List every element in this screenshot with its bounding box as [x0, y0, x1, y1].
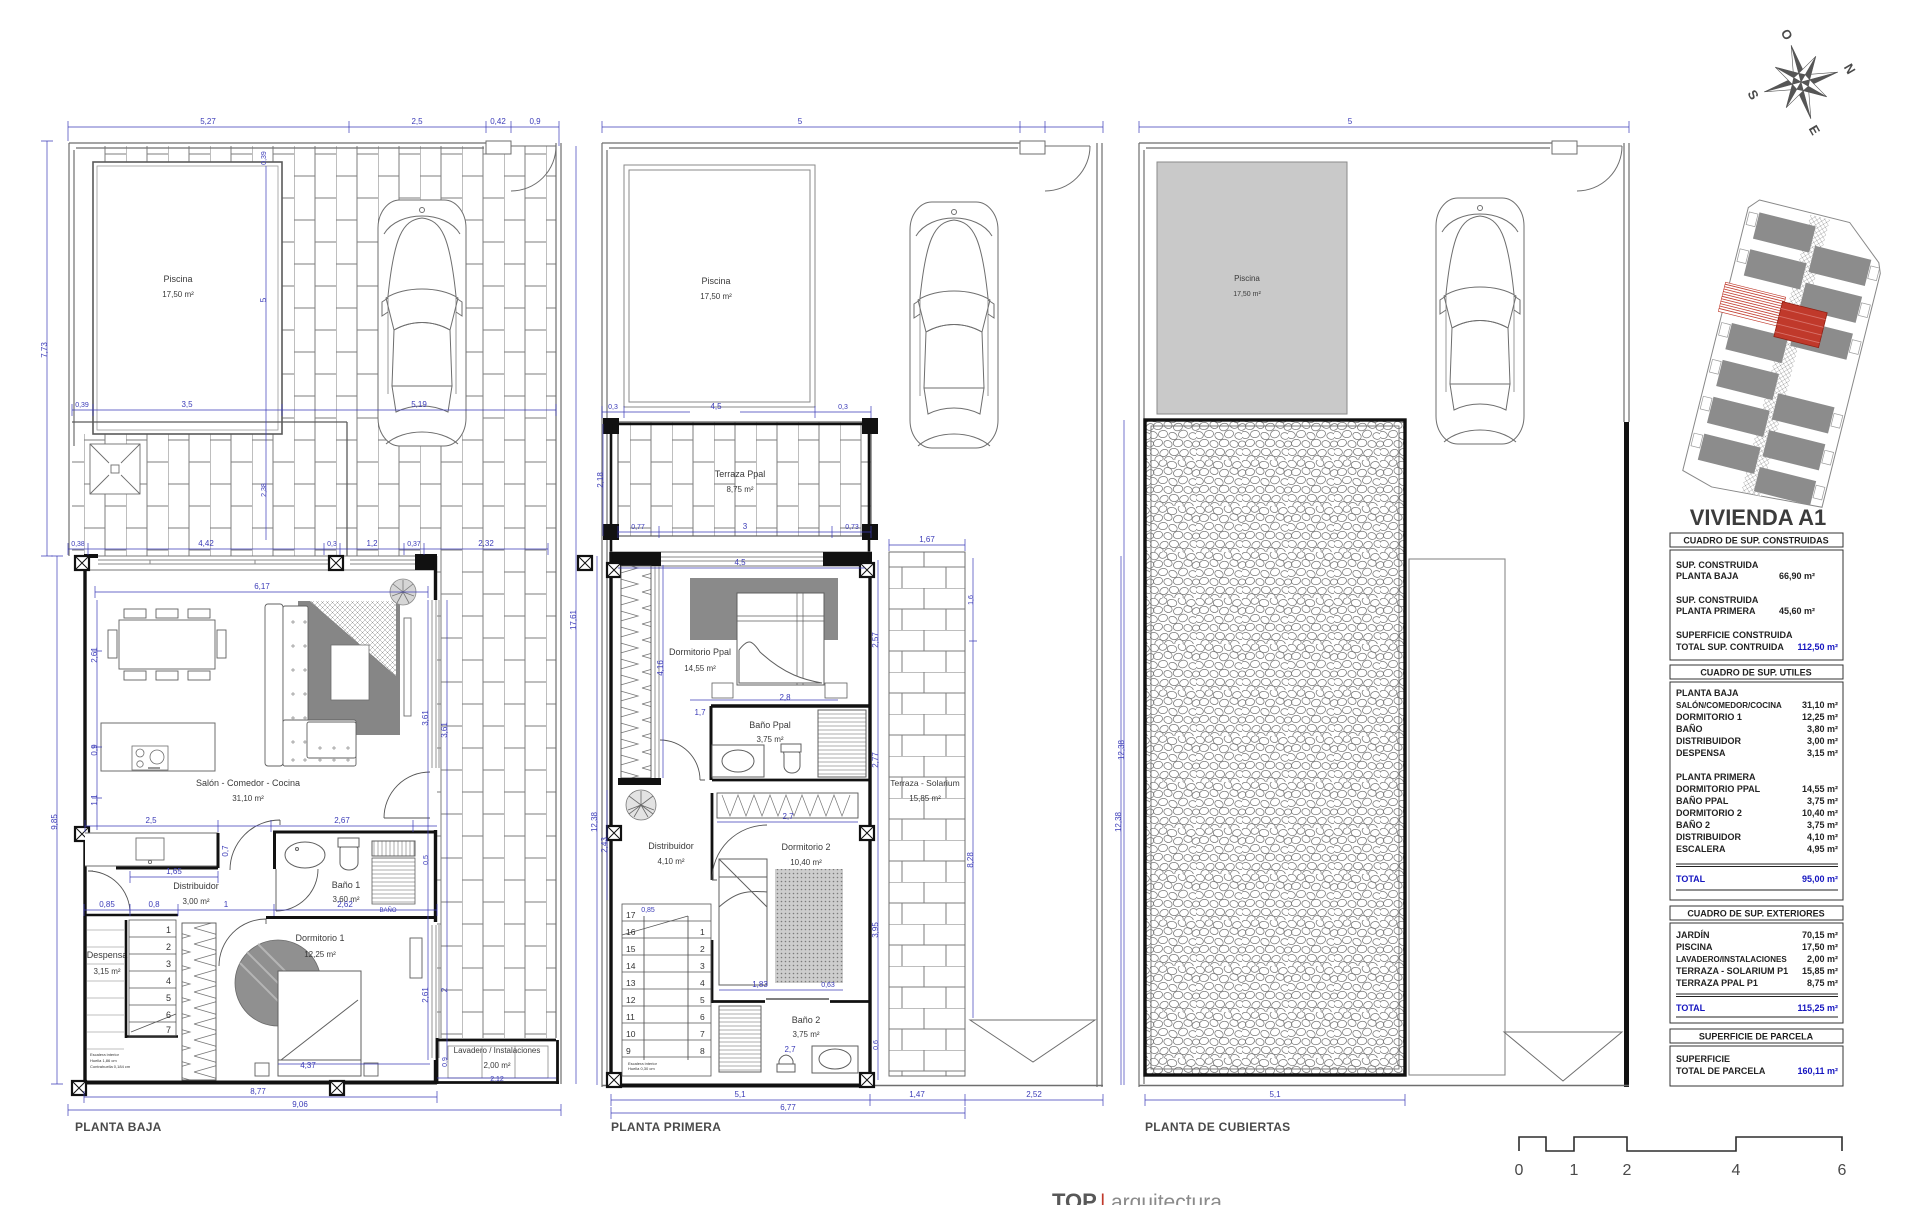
svg-text:14,55 m²: 14,55 m² [1802, 784, 1838, 794]
svg-text:16: 16 [626, 927, 636, 937]
svg-text:DISTRIBUIDOR: DISTRIBUIDOR [1676, 832, 1742, 842]
svg-text:5,1: 5,1 [734, 1090, 746, 1099]
svg-text:TERRAZA PPAL P1: TERRAZA PPAL P1 [1676, 978, 1758, 988]
svg-text:2,00 m²: 2,00 m² [483, 1061, 510, 1070]
svg-text:0,9: 0,9 [529, 117, 541, 126]
svg-text:ESCALERA: ESCALERA [1676, 844, 1726, 854]
svg-text:0,63: 0,63 [821, 982, 835, 989]
svg-text:13: 13 [626, 978, 636, 988]
svg-text:0,9: 0,9 [90, 744, 99, 756]
svg-text:2,8: 2,8 [779, 693, 791, 702]
svg-text:Huella 0,30 cm: Huella 0,30 cm [628, 1066, 655, 1071]
svg-text:17,50 m²: 17,50 m² [700, 292, 732, 301]
svg-text:|: | [1100, 1191, 1105, 1205]
svg-text:15,85 m²: 15,85 m² [909, 794, 941, 803]
svg-text:0: 0 [1515, 1162, 1524, 1179]
svg-text:Piscina: Piscina [163, 274, 192, 284]
svg-text:0,3: 0,3 [608, 404, 618, 411]
svg-text:6,77: 6,77 [780, 1103, 796, 1112]
svg-text:SUP. CONSTRUIDA: SUP. CONSTRUIDA [1676, 560, 1759, 570]
svg-text:0,7: 0,7 [221, 845, 230, 857]
svg-text:3,61: 3,61 [440, 722, 449, 738]
svg-text:12: 12 [626, 995, 636, 1005]
svg-text:0,38: 0,38 [71, 541, 85, 548]
svg-text:8,28: 8,28 [966, 852, 975, 868]
svg-text:PLANTA BAJA: PLANTA BAJA [1676, 571, 1739, 581]
svg-text:6: 6 [166, 1010, 171, 1020]
svg-text:SUP. CONSTRUIDA: SUP. CONSTRUIDA [1676, 595, 1759, 605]
svg-text:5: 5 [700, 995, 705, 1005]
svg-text:0,8: 0,8 [148, 900, 160, 909]
svg-text:160,11 m²: 160,11 m² [1797, 1066, 1838, 1076]
svg-text:Terraza - Solarium: Terraza - Solarium [890, 778, 959, 788]
svg-text:4,5: 4,5 [710, 402, 722, 411]
svg-text:0,6: 0,6 [873, 1040, 880, 1050]
svg-text:3,00 m²: 3,00 m² [1807, 736, 1838, 746]
svg-text:1,83: 1,83 [752, 980, 768, 989]
svg-text:BAÑO: BAÑO [1676, 724, 1703, 734]
svg-text:5: 5 [1348, 117, 1353, 126]
svg-text:12,38: 12,38 [1114, 811, 1123, 832]
svg-text:5,1: 5,1 [1269, 1090, 1281, 1099]
svg-text:0,3: 0,3 [327, 541, 337, 548]
svg-text:Dormitorio 1: Dormitorio 1 [295, 933, 344, 943]
svg-text:2: 2 [700, 944, 705, 954]
svg-text:Baño 1: Baño 1 [332, 880, 361, 890]
svg-text:17,50 m²: 17,50 m² [1233, 291, 1261, 298]
svg-text:2,77: 2,77 [871, 752, 880, 768]
svg-text:BAÑO 2: BAÑO 2 [1676, 820, 1710, 830]
svg-text:4,10 m²: 4,10 m² [1807, 832, 1838, 842]
svg-text:70,15 m²: 70,15 m² [1802, 930, 1838, 940]
svg-text:12,25 m²: 12,25 m² [1802, 712, 1838, 722]
svg-text:14,55 m²: 14,55 m² [684, 664, 716, 673]
svg-text:3,5: 3,5 [181, 400, 193, 409]
svg-text:DORMITORIO 1: DORMITORIO 1 [1676, 712, 1742, 722]
svg-text:6: 6 [700, 1012, 705, 1022]
svg-text:3,75 m²: 3,75 m² [792, 1030, 819, 1039]
svg-text:BAÑO: BAÑO [379, 907, 396, 914]
svg-text:31,10 m²: 31,10 m² [1802, 700, 1838, 710]
svg-text:2,5: 2,5 [411, 117, 423, 126]
svg-text:2,32: 2,32 [478, 539, 494, 548]
svg-text:17: 17 [626, 910, 636, 920]
svg-text:45,60 m²: 45,60 m² [1779, 606, 1815, 616]
svg-text:4,16: 4,16 [656, 660, 665, 676]
svg-text:TOP: TOP [1052, 1189, 1097, 1205]
svg-text:Distribuidor: Distribuidor [173, 881, 219, 891]
svg-text:10,40 m²: 10,40 m² [790, 858, 822, 867]
svg-text:TERRAZA - SOLARIUM P1: TERRAZA - SOLARIUM P1 [1676, 966, 1788, 976]
svg-text:12,38: 12,38 [590, 811, 599, 832]
svg-text:3,15 m²: 3,15 m² [93, 967, 120, 976]
svg-text:0,77: 0,77 [631, 524, 645, 531]
svg-text:VIVIENDA A1: VIVIENDA A1 [1690, 505, 1827, 530]
svg-text:3,95: 3,95 [871, 922, 880, 938]
svg-text:2,62: 2,62 [337, 900, 353, 909]
svg-text:SUPERFICIE CONSTRUIDA: SUPERFICIE CONSTRUIDA [1676, 630, 1793, 640]
svg-text:7: 7 [166, 1025, 171, 1035]
svg-text:2: 2 [440, 987, 449, 992]
svg-text:4,5: 4,5 [734, 558, 746, 567]
svg-text:95,00 m²: 95,00 m² [1802, 874, 1838, 884]
svg-text:2,7: 2,7 [784, 1045, 796, 1054]
svg-text:10: 10 [626, 1029, 636, 1039]
svg-text:0,3: 0,3 [838, 404, 848, 411]
svg-text:1: 1 [700, 927, 705, 937]
svg-text:17,61: 17,61 [569, 609, 578, 630]
svg-text:Dormitorio Ppal: Dormitorio Ppal [669, 647, 731, 657]
svg-text:3: 3 [743, 522, 748, 531]
svg-text:Piscina: Piscina [701, 276, 730, 286]
svg-text:112,50 m²: 112,50 m² [1797, 642, 1838, 652]
svg-text:CUADRO DE SUP. CONSTRUIDAS: CUADRO DE SUP. CONSTRUIDAS [1683, 536, 1828, 546]
svg-text:PISCINA: PISCINA [1676, 942, 1713, 952]
svg-text:4,95 m²: 4,95 m² [1807, 844, 1838, 854]
svg-text:1: 1 [166, 925, 171, 935]
svg-text:PLANTA PRIMERA: PLANTA PRIMERA [1676, 606, 1756, 616]
svg-text:4,42: 4,42 [198, 539, 214, 548]
svg-text:TOTAL SUP. CONTRUIDA: TOTAL SUP. CONTRUIDA [1676, 642, 1784, 652]
svg-text:115,25 m²: 115,25 m² [1797, 1003, 1838, 1013]
svg-text:8: 8 [700, 1046, 705, 1056]
svg-text:0,5: 0,5 [423, 855, 430, 865]
svg-text:Baño 2: Baño 2 [792, 1015, 821, 1025]
svg-text:8,75 m²: 8,75 m² [1807, 978, 1838, 988]
svg-text:5,19: 5,19 [411, 400, 427, 409]
svg-text:6: 6 [1838, 1162, 1847, 1179]
svg-text:Terraza Ppal: Terraza Ppal [715, 469, 766, 479]
svg-text:15,85 m²: 15,85 m² [1802, 966, 1838, 976]
svg-text:CUADRO DE SUP. EXTERIORES: CUADRO DE SUP. EXTERIORES [1687, 909, 1824, 919]
svg-text:1,7: 1,7 [694, 708, 706, 717]
svg-text:DORMITORIO PPAL: DORMITORIO PPAL [1676, 784, 1761, 794]
svg-text:Distribuidor: Distribuidor [648, 841, 694, 851]
svg-text:Baño Ppal: Baño Ppal [749, 720, 791, 730]
svg-text:DESPENSA: DESPENSA [1676, 748, 1726, 758]
svg-text:2,61: 2,61 [90, 647, 99, 663]
svg-text:12,25 m²: 12,25 m² [304, 950, 336, 959]
svg-text:1: 1 [224, 900, 229, 909]
svg-text:2,00 m²: 2,00 m² [1807, 954, 1838, 964]
svg-text:4: 4 [1732, 1162, 1741, 1179]
svg-text:66,90 m²: 66,90 m² [1779, 571, 1815, 581]
svg-text:2: 2 [166, 942, 171, 952]
svg-text:10,40 m²: 10,40 m² [1802, 808, 1838, 818]
svg-text:3,61: 3,61 [421, 710, 430, 726]
svg-text:2,7: 2,7 [782, 812, 794, 821]
svg-text:12,38: 12,38 [1117, 739, 1126, 760]
svg-text:0,39: 0,39 [75, 402, 89, 409]
svg-text:1,2: 1,2 [366, 539, 378, 548]
svg-text:3,75 m²: 3,75 m² [1807, 820, 1838, 830]
svg-text:4: 4 [166, 976, 171, 986]
svg-text:PLANTA BAJA: PLANTA BAJA [75, 1120, 162, 1134]
svg-text:3,75 m²: 3,75 m² [1807, 796, 1838, 806]
svg-text:0,73: 0,73 [845, 524, 859, 531]
svg-text:CUADRO DE SUP. UTILES: CUADRO DE SUP. UTILES [1700, 668, 1811, 678]
svg-text:1,65: 1,65 [166, 867, 182, 876]
svg-text:3,15 m²: 3,15 m² [1807, 748, 1838, 758]
svg-text:0,37: 0,37 [407, 541, 421, 548]
svg-text:Despensa: Despensa [87, 950, 128, 960]
svg-text:2,38: 2,38 [261, 483, 268, 497]
svg-text:1,47: 1,47 [909, 1090, 925, 1099]
svg-text:1: 1 [1570, 1162, 1579, 1179]
svg-text:5: 5 [259, 297, 268, 302]
svg-text:5: 5 [166, 993, 171, 1003]
svg-text:7,73: 7,73 [40, 342, 49, 358]
svg-text:TOTAL: TOTAL [1676, 874, 1706, 884]
svg-text:Dormitorio 2: Dormitorio 2 [781, 842, 830, 852]
svg-text:4,37: 4,37 [300, 1061, 316, 1070]
svg-text:JARDÍN: JARDÍN [1676, 930, 1710, 940]
svg-text:2,5: 2,5 [145, 816, 157, 825]
svg-text:2,57: 2,57 [871, 632, 880, 648]
svg-text:arquitectura: arquitectura [1111, 1191, 1222, 1205]
svg-text:PLANTA PRIMERA: PLANTA PRIMERA [611, 1120, 721, 1134]
svg-text:SUPERFICIE DE PARCELA: SUPERFICIE DE PARCELA [1699, 1032, 1814, 1042]
svg-text:2,12: 2,12 [490, 1076, 504, 1083]
svg-text:1,1: 1,1 [90, 794, 99, 806]
svg-text:LAVADERO/INSTALACIONES: LAVADERO/INSTALACIONES [1676, 955, 1787, 964]
svg-text:Lavadero / Instalaciones: Lavadero / Instalaciones [454, 1046, 541, 1055]
svg-text:0,42: 0,42 [490, 117, 506, 126]
svg-text:6,17: 6,17 [254, 582, 270, 591]
svg-text:Piscina: Piscina [1234, 274, 1260, 283]
svg-text:9,06: 9,06 [292, 1100, 308, 1109]
svg-text:Contrahuella 0,184 cm: Contrahuella 0,184 cm [90, 1064, 131, 1069]
svg-text:15: 15 [626, 944, 636, 954]
svg-text:31,10 m²: 31,10 m² [232, 794, 264, 803]
svg-text:TOTAL: TOTAL [1676, 1003, 1706, 1013]
svg-text:PLANTA DE CUBIERTAS: PLANTA DE CUBIERTAS [1145, 1120, 1290, 1134]
svg-text:2,52: 2,52 [1026, 1090, 1042, 1099]
svg-text:3,75 m²: 3,75 m² [756, 735, 783, 744]
svg-text:DISTRIBUIDOR: DISTRIBUIDOR [1676, 736, 1742, 746]
svg-text:3: 3 [166, 959, 171, 969]
svg-text:9,85: 9,85 [50, 814, 59, 830]
svg-text:1,67: 1,67 [919, 535, 935, 544]
svg-text:0,85: 0,85 [99, 900, 115, 909]
svg-text:0,39: 0,39 [261, 151, 268, 165]
svg-text:Huella 1,86 cm: Huella 1,86 cm [90, 1058, 117, 1063]
svg-text:1,6: 1,6 [968, 595, 975, 605]
svg-text:TOTAL DE PARCELA: TOTAL DE PARCELA [1676, 1066, 1766, 1076]
svg-text:17,50 m²: 17,50 m² [162, 290, 194, 299]
svg-text:3,00 m²: 3,00 m² [182, 897, 209, 906]
svg-text:BAÑO PPAL: BAÑO PPAL [1676, 796, 1729, 806]
svg-text:DORMITORIO 2: DORMITORIO 2 [1676, 808, 1742, 818]
svg-text:PLANTA BAJA: PLANTA BAJA [1676, 688, 1739, 698]
svg-text:SUPERFICIE: SUPERFICIE [1676, 1054, 1730, 1064]
svg-text:Salón - Comedor - Cocina: Salón - Comedor - Cocina [196, 778, 300, 788]
svg-text:3: 3 [700, 961, 705, 971]
svg-text:PLANTA PRIMERA: PLANTA PRIMERA [1676, 772, 1756, 782]
svg-text:4,10 m²: 4,10 m² [657, 857, 684, 866]
svg-text:0,85: 0,85 [641, 907, 655, 914]
svg-text:8,75 m²: 8,75 m² [726, 485, 753, 494]
svg-text:Escalera interior: Escalera interior [90, 1052, 120, 1057]
svg-text:2: 2 [1623, 1162, 1632, 1179]
svg-text:3,80 m²: 3,80 m² [1807, 724, 1838, 734]
svg-text:5: 5 [798, 117, 803, 126]
svg-text:SALÓN/COMEDOR/COCINA: SALÓN/COMEDOR/COCINA [1676, 701, 1782, 710]
svg-text:0,9: 0,9 [442, 1057, 449, 1067]
svg-text:5,27: 5,27 [200, 117, 216, 126]
svg-text:17,50 m²: 17,50 m² [1802, 942, 1838, 952]
svg-text:2,43: 2,43 [600, 837, 609, 853]
svg-text:4: 4 [700, 978, 705, 988]
svg-text:11: 11 [626, 1012, 635, 1022]
svg-text:2,67: 2,67 [334, 816, 350, 825]
svg-text:7: 7 [700, 1029, 705, 1039]
svg-text:2,18: 2,18 [596, 472, 605, 488]
svg-text:14: 14 [626, 961, 636, 971]
svg-text:9: 9 [626, 1046, 631, 1056]
svg-text:8,77: 8,77 [250, 1087, 266, 1096]
svg-text:2,61: 2,61 [421, 987, 430, 1003]
